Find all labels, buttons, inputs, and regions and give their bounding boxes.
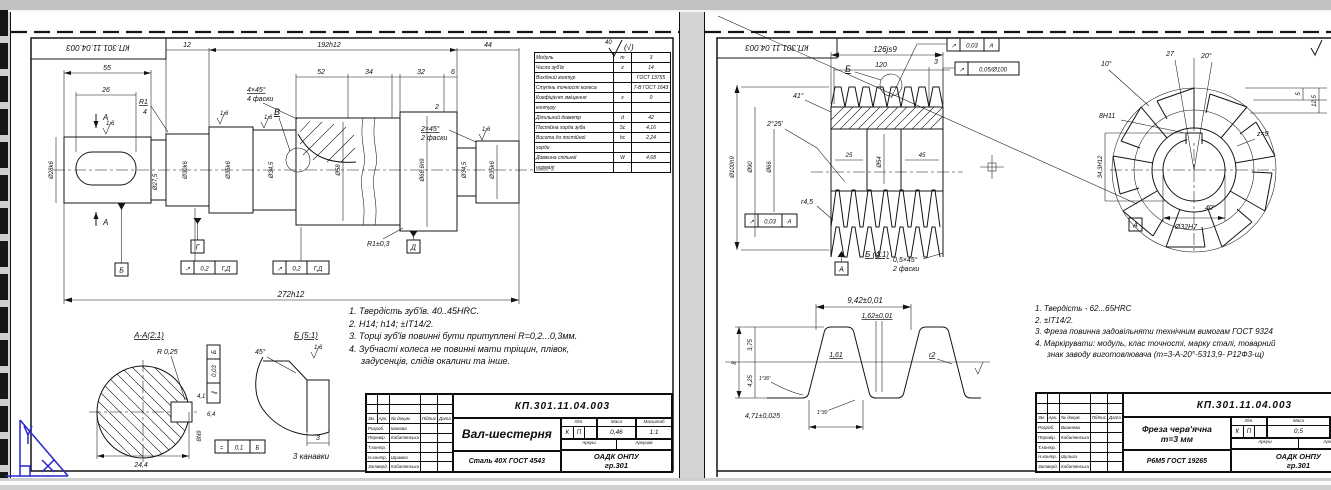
- note-line: 1. Твердість - 62...65HRC: [1035, 303, 1275, 315]
- ptab-label: хорди: [535, 143, 614, 153]
- mass-label: Маса: [598, 419, 635, 427]
- ptab-val: 0: [632, 93, 671, 103]
- datum-flag-a: А: [835, 251, 848, 275]
- ptab-label: контуру: [535, 103, 614, 113]
- ptab-sym: [614, 103, 632, 113]
- dim-6: 6: [451, 69, 455, 76]
- sig-name: Шульга: [1060, 452, 1091, 462]
- view-b-detail: Б (5:1) 45° 1,6 3 3 канавки: [255, 331, 330, 461]
- dim-24-4: 24,4: [133, 462, 148, 469]
- dim-flutes: z=9: [1256, 131, 1269, 138]
- datum-g: Г: [196, 245, 201, 252]
- ra-mark: 1,6: [220, 111, 229, 117]
- fillet-tolerance-label: R1±0,3: [367, 228, 403, 248]
- datum-a: А: [1132, 223, 1138, 230]
- corner-doc-number: КП.301.11.04.003: [66, 43, 130, 52]
- sheets-label: Аркушів: [1299, 439, 1331, 448]
- title-block: Зм. Арк. № докум. Підпис Дата Розроб.Виш…: [1035, 392, 1331, 473]
- dim-126js9: 126js9: [873, 45, 897, 54]
- doc-number: КП.301.11.04.003: [1123, 393, 1331, 417]
- dim-ang2: 1°30': [817, 410, 829, 416]
- runout-frame-2: ↗ 0,2 Г,Д: [273, 227, 329, 274]
- liter-3: [1255, 426, 1266, 437]
- sig-name: Іванова: [390, 423, 421, 433]
- note-line: 4. Маркірувати: модуль, клас точності, м…: [1035, 338, 1275, 350]
- sig-h: Підпис: [421, 414, 438, 424]
- tooth-profile-view: Б (4:1) 8 3,75 4,25 9,42±0,01: [725, 250, 990, 430]
- sheet-shaft-gear: КП.301.11.04.003 40 (√): [10, 12, 680, 479]
- ptab-val: [632, 103, 671, 113]
- ptab-sym: m: [614, 53, 632, 63]
- dim-44: 44: [484, 42, 492, 49]
- dim-27: 27: [1165, 51, 1175, 58]
- sig-name: [1060, 442, 1091, 452]
- datum-b: Б: [119, 268, 124, 275]
- sig-role: Затверд.: [1037, 462, 1060, 472]
- section-label-a-bottom: А: [102, 218, 108, 227]
- dim-r2: r2: [929, 352, 935, 359]
- ptab-label: Висота до постійної: [535, 133, 614, 143]
- ptab-label: Постійна хорда зуба: [535, 123, 614, 133]
- datum-a: А: [838, 267, 844, 274]
- ptab-val: 7-В ГОСТ 1643: [632, 83, 671, 93]
- ptab-val: 4,16: [632, 123, 671, 133]
- ptab-val: [632, 143, 671, 153]
- sframe-tol: 0,1: [235, 446, 243, 452]
- ptab-label: Коефіцієнт зміщення: [535, 93, 614, 103]
- ptab-sym: d: [614, 113, 632, 123]
- frame-datum: А: [786, 220, 791, 226]
- liter-1: К: [562, 427, 574, 438]
- ra-mark: 1,6: [482, 127, 491, 133]
- parallelism-frame: Б 0,03 ∥: [207, 345, 220, 403]
- ptab-label: Ділильний діаметр: [535, 113, 614, 123]
- mass-value: 0,5: [1268, 426, 1329, 437]
- dia-27-5: Ø27,5: [153, 173, 159, 191]
- dia-66-6: Ø66,6h9: [420, 158, 426, 183]
- runout-frame-1: ↗ 0,2 Г,Д: [181, 208, 237, 274]
- section-aa-view: А-А(2:1) R 0,25 4,1 6,4: [89, 331, 265, 469]
- corner-doc-number: КП.301.11.04.003: [745, 43, 809, 52]
- sig-role: Затверд.: [367, 462, 390, 472]
- pframe-tol: 0,03: [212, 365, 218, 377]
- sheets-label: Аркушів: [617, 440, 671, 449]
- dim-base: 4,71±0,025: [745, 413, 780, 420]
- ra-mark: 1,6: [314, 345, 323, 351]
- mass-value: 0,46: [598, 427, 635, 438]
- title-block-main: КП.301.11.04.003 Вал-шестерня Сталь 40Х …: [453, 394, 672, 472]
- dim-34-3h12: 34,3Н12: [1098, 155, 1104, 178]
- sig-role: Розроб.: [367, 423, 390, 433]
- ptab-sym: z: [614, 63, 632, 73]
- note-line: 2. ±IT14/2.: [1035, 315, 1275, 327]
- dim-r025: R 0,25: [157, 349, 178, 356]
- roughness-corner-mark: [1311, 40, 1322, 55]
- sig-role: Перевір.: [367, 433, 390, 443]
- ptab-label: Ступінь точності колеса: [535, 83, 614, 93]
- dim-120: 120: [875, 62, 887, 69]
- sframe-symbol: =: [220, 446, 224, 452]
- dim-d66: Ø66: [767, 161, 773, 174]
- ptab-sym: hc: [614, 133, 632, 143]
- title-block: Зм. Арк. № докум. Підпис Дата Розроб.Іва…: [365, 393, 673, 473]
- dim-55: 55: [103, 65, 111, 72]
- ptab-label: Число зуб'їв: [535, 63, 614, 73]
- frame-datum: А: [988, 44, 993, 50]
- liter-2: П: [1244, 426, 1256, 437]
- material: Р6М5 ГОСТ 19265: [1123, 450, 1231, 472]
- frame-symbol: ↗: [951, 44, 957, 50]
- sig-role: Перевір.: [1037, 433, 1060, 443]
- note-line: задусенців, слідів окалини та інше.: [349, 355, 577, 368]
- dim-45: 45: [919, 153, 926, 159]
- corner-doc-box: КП.301.11.04.003: [31, 38, 166, 59]
- dim-groove: 1,62±0,01: [861, 313, 892, 320]
- dim-26: 26: [101, 87, 110, 94]
- window-bottom-strip: [0, 478, 1331, 490]
- pframe-datum: Б: [212, 350, 218, 354]
- sig-role: Н.контр.: [367, 452, 390, 462]
- dim-r45: r4,5: [801, 199, 813, 206]
- dim-r1-count: 4: [143, 109, 147, 116]
- dim-8n9: 8N9: [197, 430, 203, 442]
- material: Сталь 40Х ГОСТ 4543: [453, 451, 561, 472]
- hob-dimensions: 126js9 120 3 41° 2°25' Ø100h9 Ø90 Ø66: [730, 45, 950, 273]
- technical-notes: 1. Твердість зуб'їв. 40..45HRC. 2. Н14; …: [349, 305, 577, 368]
- bottom-highlight-line: [0, 481, 1331, 485]
- ptab-label: нормалі: [535, 163, 614, 173]
- datum-flag-b: Б: [115, 203, 128, 276]
- ptab-val: ГОСТ 13755: [632, 73, 671, 83]
- dim-chamfer2: 2×45°: [420, 125, 440, 133]
- ptab-val: 3: [632, 53, 671, 63]
- dim-chamfer-count: 2 фаски: [892, 266, 919, 273]
- frame-symbol: ↗: [959, 68, 965, 74]
- org-name: ОАДК ОНПУ: [1276, 452, 1321, 461]
- sig-role: Н.контр.: [1037, 452, 1060, 462]
- ptab-sym: [614, 143, 632, 153]
- dim-272h12: 272h12: [277, 290, 305, 299]
- mass-label: Маса: [1268, 418, 1329, 426]
- fillet-r1-label: R1 4: [139, 99, 168, 132]
- datum-d: Д: [410, 245, 416, 252]
- sig-h: № докум.: [390, 414, 421, 424]
- dim-6-4: 6,4: [207, 412, 216, 418]
- sig-name: Кабатянська: [1060, 462, 1091, 472]
- dim-4-25: 4,25: [748, 375, 754, 387]
- ptab-sym: [614, 73, 632, 83]
- dim-3: 3: [934, 59, 938, 66]
- dim-chamfer1-count: 4 фаски: [247, 96, 273, 103]
- sig-h: Дата: [1108, 413, 1123, 423]
- scale-label: Масштаб: [637, 419, 671, 427]
- groove-caption: 3 канавки: [293, 452, 330, 461]
- ptab-val: 42: [632, 113, 671, 123]
- dim-3: 3: [316, 435, 320, 442]
- sig-h: Арк.: [377, 414, 389, 424]
- frame1-datum: Г,Д: [222, 267, 231, 273]
- sheet-worm-hob: КП.301.11.04.003: [704, 12, 1331, 479]
- symmetry-frame: = 0,1 Б: [215, 440, 265, 453]
- runout-frame-a3: ↗ 0,03 А: [745, 214, 797, 227]
- roughness-value: 40: [605, 40, 612, 46]
- dim-32: 32: [417, 69, 425, 76]
- dim-chamfer1: 4×45°: [247, 86, 266, 94]
- dim-3-75: 3,75: [748, 339, 754, 351]
- liter-label: Літ.: [1232, 418, 1266, 426]
- sig-name: [390, 443, 421, 453]
- note-line: 4. Зубчасті колеса не повинні мати тріщи…: [349, 343, 577, 356]
- corner-doc-box: КП.301.11.04.003: [717, 38, 837, 58]
- dim-12: 12: [183, 42, 191, 49]
- note-line: 3. Фреза повинна задовільняти технічним …: [1035, 326, 1275, 338]
- note-line: 2. Н14; h14; ±IT14/2.: [349, 318, 577, 331]
- technical-notes: 1. Твердість - 62...65HRC 2. ±IT14/2. 3.…: [1035, 303, 1275, 361]
- part-module: m=3 мм: [1161, 434, 1193, 444]
- frame-symbol: ↗: [749, 220, 755, 226]
- ptab-val: 2,24: [632, 133, 671, 143]
- frame2-datum: Г,Д: [314, 267, 323, 273]
- runout-frame-a2: ↗ 0,05/Ø100: [943, 62, 1019, 106]
- datum-flag-d: Д: [407, 231, 420, 253]
- sig-name: Вишнева: [1060, 423, 1091, 433]
- dim-12-5: 12,5: [1312, 95, 1318, 107]
- dim-d90: Ø90: [748, 161, 754, 174]
- sig-h: Підпис: [1091, 413, 1108, 423]
- ptab-sym: Sc: [614, 123, 632, 133]
- dia-58: Ø58: [336, 164, 342, 177]
- sheet-label: Аркуш: [562, 440, 617, 449]
- sframe-datum: Б: [256, 446, 260, 452]
- dim-25: 25: [845, 153, 853, 159]
- dia-34-5: Ø34,5: [269, 161, 275, 179]
- dia-35k6b: Ø35k6: [490, 161, 496, 180]
- liter-3: [585, 427, 596, 438]
- sig-h: Зм.: [367, 414, 378, 424]
- frame-tol: 0,03: [966, 44, 978, 50]
- sig-name: Кабатянська: [390, 433, 421, 443]
- dim-pitch: 9,42±0,01: [847, 296, 883, 305]
- ptab-val: [632, 163, 671, 173]
- liter-1: К: [1232, 426, 1244, 437]
- sig-h: Арк.: [1047, 413, 1059, 423]
- ptab-sym: [614, 83, 632, 93]
- window-top-strip: [0, 0, 1331, 12]
- sig-role: Т.контр.: [1037, 442, 1060, 452]
- ptab-sym: x: [614, 93, 632, 103]
- frame-tol: 0,03: [764, 220, 776, 226]
- profile-title: Б (4:1): [865, 250, 889, 259]
- dim-10deg: 10°: [1101, 60, 1112, 68]
- doc-number: КП.301.11.04.003: [453, 394, 672, 418]
- sig-role: Т.контр.: [367, 443, 390, 453]
- ptab-sym: [614, 163, 632, 173]
- section-aa-dims: R 0,25 4,1 6,4 8N9 24,4: [97, 349, 216, 469]
- dim-5: 5: [1296, 92, 1302, 96]
- profile-dims: 8 3,75 4,25 9,42±0,01 1,62±0,01 1,61 r2 …: [732, 296, 983, 430]
- ptab-label: Модуль: [535, 53, 614, 63]
- ptab-sym: W: [614, 153, 632, 163]
- roughness-alt: (√): [624, 43, 634, 52]
- sig-role: Розроб.: [1037, 423, 1060, 433]
- ptab-label: Вихідний контур: [535, 73, 614, 83]
- gear-parameter-table: Модульm3 Число зуб'ївz14 Вихідний контур…: [534, 52, 671, 173]
- ptab-val: 14: [632, 63, 671, 73]
- dia-34-5b: Ø34,5: [462, 161, 468, 179]
- sig-name: Кабатянська: [1060, 433, 1091, 443]
- dim-2: 2: [434, 104, 439, 111]
- dim-chamfer: 0,5×45°: [893, 256, 918, 264]
- sig-h: Зм.: [1037, 413, 1048, 423]
- shaft-front-view: А А В: [53, 107, 556, 231]
- org-group: гр.301: [1287, 461, 1310, 470]
- sheet-label: Аркуш: [1232, 439, 1299, 448]
- ra-mark: 1,6: [106, 121, 115, 127]
- section-aa-title: А-А(2:1): [133, 331, 164, 340]
- ptab-label: Довжина спільної: [535, 153, 614, 163]
- frame2-tol: 0,2: [292, 267, 301, 273]
- dim-d100: Ø100h9: [730, 156, 736, 179]
- dim-52: 52: [317, 69, 325, 76]
- shaft-dimensions: 12 192h12 44 55 52 34 32 6 2: [49, 42, 519, 304]
- sig-h: № докум.: [1060, 413, 1091, 423]
- dim-d54: Ø54: [877, 156, 883, 169]
- part-name: Фреза черв'ячна: [1142, 424, 1212, 434]
- dim-192h12: 192h12: [317, 42, 340, 49]
- dim-2deg25: 2°25': [766, 120, 783, 128]
- note-line: 1. Твердість зуб'їв. 40..45HRC.: [349, 305, 577, 318]
- dim-r1-03: R1±0,3: [367, 241, 390, 248]
- note-line: знак заводу виготовлювача (m=3-А-20°-531…: [1035, 349, 1275, 361]
- signature-table: Зм. Арк. № докум. Підпис Дата Розроб.Виш…: [1036, 393, 1123, 472]
- part-name: Вал-шестерня: [453, 418, 561, 451]
- ptab-val: 4,68: [632, 153, 671, 163]
- liter-label: Літ.: [562, 419, 596, 427]
- signature-table: Зм. Арк. № докум. Підпис Дата Розроб.Іва…: [366, 394, 453, 472]
- chamfer-label-2: 2×45° 2 фаски: [420, 125, 476, 142]
- sig-name: Шрамко: [390, 452, 421, 462]
- ucs-axes-icon: [2, 412, 74, 484]
- view-b-title: Б (5:1): [294, 331, 318, 340]
- dim-bore: Ø32Н7: [1174, 224, 1198, 231]
- dim-40deg: 40°: [1205, 204, 1216, 212]
- dim-top: 1,61: [829, 352, 843, 359]
- dia-35k6: Ø35k6: [226, 161, 232, 180]
- frame1-tol: 0,2: [200, 267, 209, 273]
- dim-41deg: 41°: [793, 92, 804, 100]
- org-name: ОАДК ОНПУ: [594, 452, 639, 461]
- dim-h8: 8: [732, 361, 738, 365]
- scale-value: 1:1: [637, 427, 671, 438]
- frame1-symbol: ↗: [185, 267, 191, 273]
- dim-34: 34: [365, 69, 373, 76]
- dim-4-1: 4,1: [197, 394, 205, 400]
- center-point-marker: [980, 155, 1004, 179]
- org-group: гр.301: [605, 461, 628, 470]
- frame-tol: 0,05/Ø100: [979, 68, 1008, 74]
- sig-name: Кабатянська: [390, 462, 421, 472]
- title-block-main: КП.301.11.04.003 Фреза черв'ячна m=3 мм …: [1123, 393, 1331, 472]
- dim-r1: R1: [139, 99, 148, 106]
- dim-20deg: 20°: [1200, 52, 1212, 60]
- dia-28k6: Ø28k6: [49, 161, 55, 180]
- datum-flag-g: Г: [191, 218, 204, 253]
- pframe-symbol: ∥: [211, 391, 218, 395]
- dim-8h11: 8Н11: [1099, 113, 1115, 120]
- callout-b-label: Б: [845, 64, 851, 74]
- dim-chamfer2-count: 2 фаски: [420, 135, 447, 142]
- dia-30k6: Ø30k6: [183, 161, 189, 180]
- dim-45deg: 45°: [255, 348, 266, 356]
- ra-mark: 1,6: [264, 115, 273, 121]
- note-line: 3. Торці зуб'їв повинні бути притуплені …: [349, 330, 577, 343]
- liter-2: П: [574, 427, 586, 438]
- dim-ang1: 1°30': [759, 376, 771, 382]
- sig-h: Дата: [438, 414, 453, 424]
- frame2-symbol: ↗: [277, 267, 283, 273]
- cad-viewport: КП.301.11.04.003 40 (√): [0, 0, 1331, 490]
